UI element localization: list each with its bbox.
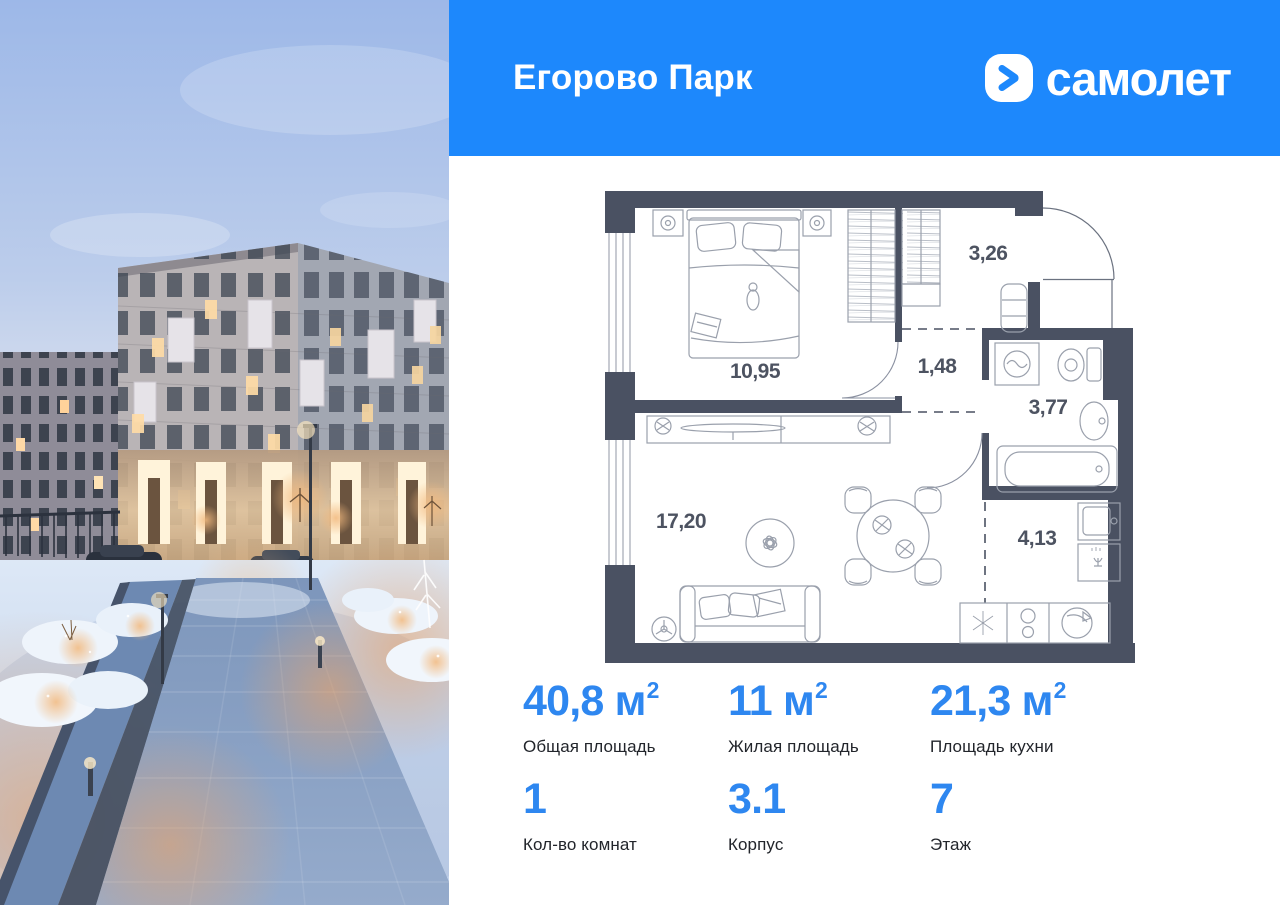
samolet-chevron-icon — [985, 54, 1033, 102]
stat-label: Кол-во комнат — [523, 835, 637, 855]
entrance-door-arc — [1043, 208, 1114, 328]
stat-label: Жилая площадь — [728, 737, 859, 757]
room-area-kitchen: 4,13 — [1018, 527, 1057, 550]
stat-label: Площадь кухни — [930, 737, 1065, 757]
listing-card: Егорово Парк самолет — [0, 0, 1280, 905]
brand-name: самолет — [1046, 51, 1231, 106]
header: Егорово Парк самолет — [449, 0, 1280, 156]
stat-kitchen-area: 21,3 м2 Площадь кухни — [930, 680, 1065, 757]
stat-label: Этаж — [930, 835, 971, 855]
stat-living-area: 11 м2 Жилая площадь — [728, 680, 859, 757]
stat-rooms-count: 1 Кол-во комнат — [523, 778, 637, 855]
room-area-corridor: 1,48 — [918, 355, 958, 378]
bathroom-door-arc — [927, 433, 982, 488]
stat-floor: 7 Этаж — [930, 778, 971, 855]
floor-plan: 10,95 3,26 1,48 3,77 17,20 4,13 — [605, 188, 1135, 663]
chair — [845, 487, 941, 585]
plan-furniture — [647, 210, 1120, 643]
bedroom-door-arc — [842, 342, 898, 398]
room-area-living: 17,20 — [656, 510, 706, 533]
stat-label: Корпус — [728, 835, 785, 855]
room-area-hallway: 3,26 — [969, 242, 1008, 265]
stat-label: Общая площадь — [523, 737, 658, 757]
stat-building: 3.1 Корпус — [728, 778, 785, 855]
hero-photo — [0, 0, 449, 905]
room-area-bathroom: 3,77 — [1029, 396, 1068, 419]
stat-total-area: 40,8 м2 Общая площадь — [523, 680, 658, 757]
project-title: Егорово Парк — [513, 58, 753, 98]
room-area-bedroom: 10,95 — [730, 360, 781, 383]
brand-logo: самолет — [985, 51, 1231, 106]
